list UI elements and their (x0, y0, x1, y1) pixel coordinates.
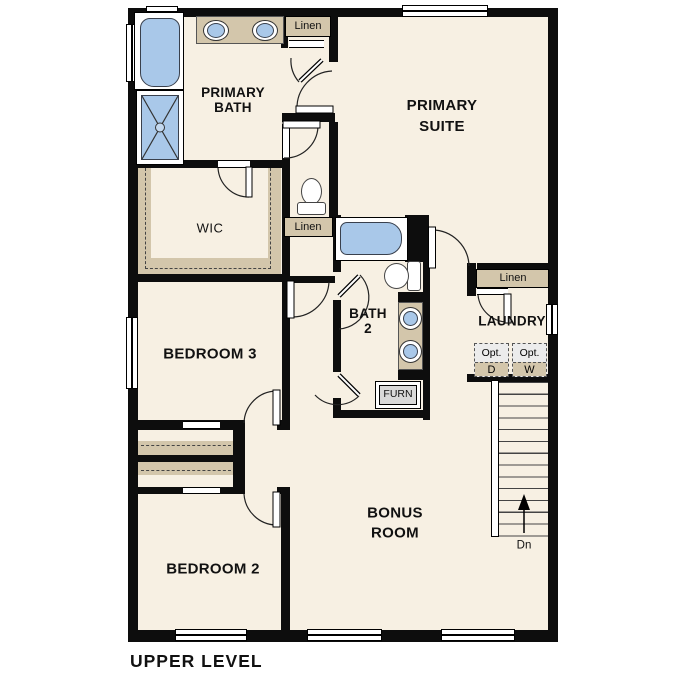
window (546, 304, 558, 335)
window (307, 629, 382, 641)
label-line: 2 (349, 321, 387, 336)
stair-rail (491, 380, 499, 537)
laundry-door-opening (477, 288, 508, 295)
wall (333, 410, 430, 418)
window (126, 317, 138, 389)
wall (233, 420, 245, 494)
window (175, 629, 247, 641)
window (402, 5, 488, 17)
bathtub (140, 18, 180, 87)
optional-dryer: Opt. D (474, 343, 509, 377)
wall (138, 274, 290, 282)
linen-label-top: Linen (295, 20, 322, 32)
wall (282, 113, 335, 122)
opt-label: Opt. (475, 344, 508, 362)
toilet-bowl (384, 263, 409, 289)
sink-basin (256, 23, 274, 38)
sink-basin (403, 344, 418, 359)
sink-basin (403, 311, 418, 326)
wall (467, 263, 476, 296)
wall (250, 160, 290, 168)
wall (128, 8, 558, 17)
label-line: BATH (349, 306, 387, 321)
room-label-primary-bath: PRIMARY BATH (201, 85, 265, 115)
wall (329, 122, 338, 218)
toilet-bowl (301, 178, 322, 205)
closet-shelf (138, 462, 233, 475)
closet-bypass-door (183, 487, 220, 494)
label-line: PRIMARY (201, 85, 265, 100)
wall (333, 300, 341, 372)
closet-bypass-door (183, 421, 220, 429)
wic-rod-dashed (145, 168, 271, 269)
wall (398, 292, 430, 302)
room-label-bedroom3: BEDROOM 3 (163, 347, 257, 364)
label-line: PRIMARY (407, 95, 478, 116)
washer-label: W (513, 362, 546, 376)
room-label-laundry: LAUNDRY (478, 313, 546, 328)
room-label-bonus: BONUS ROOM (367, 504, 423, 543)
wall (398, 370, 430, 380)
label-line: BATH (201, 100, 265, 115)
label-line: SUITE (407, 116, 478, 137)
bathtub-2 (340, 222, 402, 255)
wall (281, 487, 290, 631)
wall (138, 487, 183, 494)
window (441, 629, 515, 641)
wic-door-opening (218, 160, 250, 168)
stair-treads (499, 382, 548, 537)
closet-rod-dashed (141, 470, 231, 471)
wall (405, 215, 429, 262)
room-label-wic: WIC (197, 222, 224, 237)
stairs-down-label: Dn (517, 540, 532, 553)
toilet-tank (407, 261, 421, 291)
room-label-primary-suite: PRIMARY SUITE (407, 95, 478, 137)
closet-rod-dashed (141, 445, 231, 446)
page-title: UPPER LEVEL (130, 651, 263, 672)
optional-washer: Opt. W (512, 343, 547, 377)
shower-pan (141, 95, 179, 160)
toilet-room-opening (282, 124, 290, 158)
floor-plan: Opt. D Opt. W (0, 0, 687, 687)
wall (423, 260, 430, 420)
room-label-bedroom2: BEDROOM 2 (166, 562, 260, 579)
furnace-label: FURN (383, 389, 412, 401)
linen-label-laundry: Linen (500, 272, 527, 284)
closet-shelf (138, 441, 233, 455)
wall (282, 283, 290, 423)
toilet-tank (297, 202, 326, 215)
label-line: BONUS (367, 504, 423, 524)
room-label-bath2: BATH 2 (349, 306, 387, 336)
sink-basin (207, 23, 225, 38)
label-line: ROOM (367, 523, 423, 543)
wall (220, 487, 244, 494)
wall (138, 455, 233, 462)
dryer-label: D (475, 362, 508, 376)
linen-label-mid: Linen (295, 221, 322, 233)
linen-closet-opening (289, 40, 324, 48)
opt-label: Opt. (513, 344, 546, 362)
